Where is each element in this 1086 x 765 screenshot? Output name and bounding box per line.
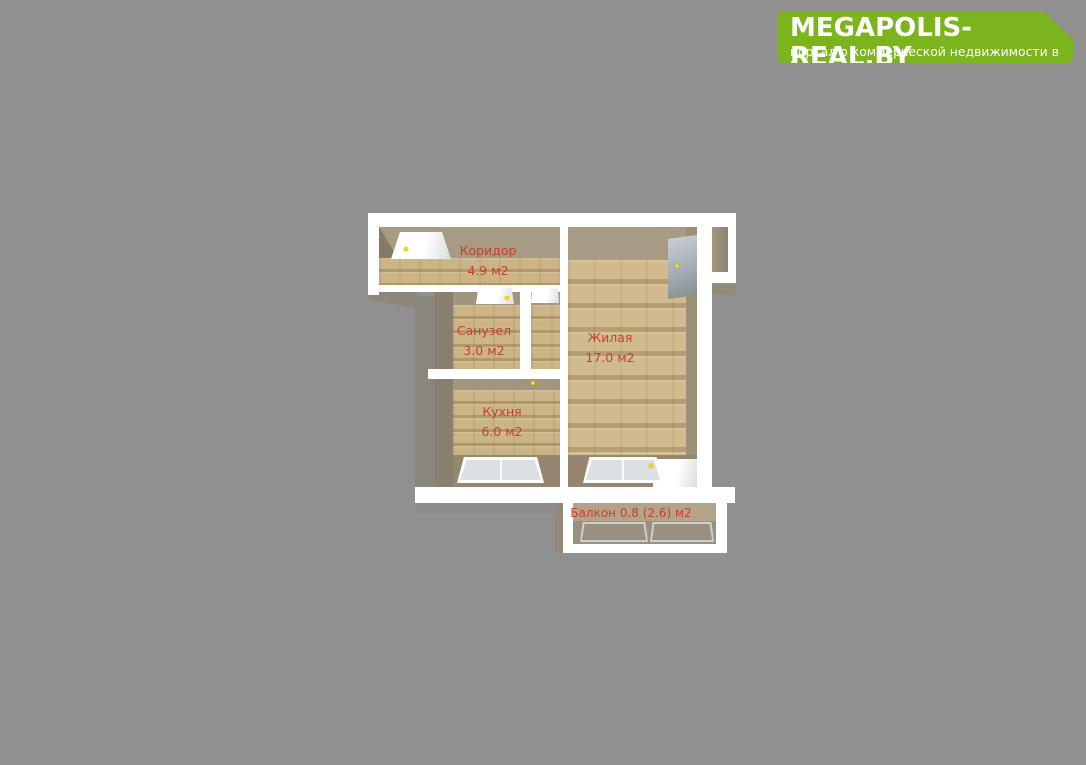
kitchen-label: Кухня 6.0 м2	[432, 402, 572, 441]
balcony-door-handle	[649, 464, 653, 468]
corridor-label: Коридор 4.9 м2	[418, 241, 558, 280]
living-area: 17.0 м2	[540, 348, 680, 368]
living-room-door	[668, 235, 697, 299]
living-name: Жилая	[540, 328, 680, 348]
living-label: Жилая 17.0 м2	[540, 328, 680, 367]
balcony-name-area: Балкон 0.8 (2.6) м2	[551, 504, 711, 524]
kitchen-top-band	[453, 379, 560, 390]
living-window-divider	[622, 459, 624, 481]
kitchen-name: Кухня	[432, 402, 572, 422]
wall-bathroom-bottom	[428, 369, 568, 379]
entrance-door-handle	[404, 247, 408, 251]
bathroom-label: Санузел 3.0 м2	[414, 321, 554, 360]
balcony-window-2	[650, 522, 714, 542]
bathroom-door-handle	[505, 296, 509, 300]
living-door-handle	[675, 264, 679, 268]
wall-balcony-bottom	[563, 544, 727, 553]
corridor-area: 4.9 м2	[418, 261, 558, 281]
shadow-block-bottom	[415, 503, 567, 513]
corridor-name: Коридор	[418, 241, 558, 261]
kitchen-window-divider	[500, 459, 502, 481]
kitchen-area: 6.0 м2	[432, 422, 572, 442]
wall-corridor-left	[368, 213, 379, 295]
bathroom-name: Санузел	[414, 321, 554, 341]
balcony-window-1	[580, 522, 648, 542]
shadow-balcony-bottom	[563, 553, 727, 559]
wall-bottom	[415, 487, 735, 503]
wall-living-right	[697, 213, 712, 503]
niche-floor	[712, 227, 728, 272]
kitchen-window	[457, 457, 544, 483]
balcony-label: Балкон 0.8 (2.6) м2	[551, 504, 711, 524]
wall-niche-bottom	[697, 272, 736, 283]
floorplan: Коридор 4.9 м2 Санузел 3.0 м2 Жилая 17.0…	[0, 0, 1086, 765]
page-background: MEGAPOLIS-REAL.BY портал о коммерческой …	[0, 0, 1086, 765]
bathroom-area: 3.0 м2	[414, 341, 554, 361]
living-window	[583, 457, 663, 483]
balcony-window-1-glass	[582, 524, 646, 540]
wall-top	[368, 213, 736, 227]
closet-door	[531, 288, 559, 303]
closet-door-handle	[531, 381, 535, 385]
balcony-window-2-glass	[652, 524, 712, 540]
